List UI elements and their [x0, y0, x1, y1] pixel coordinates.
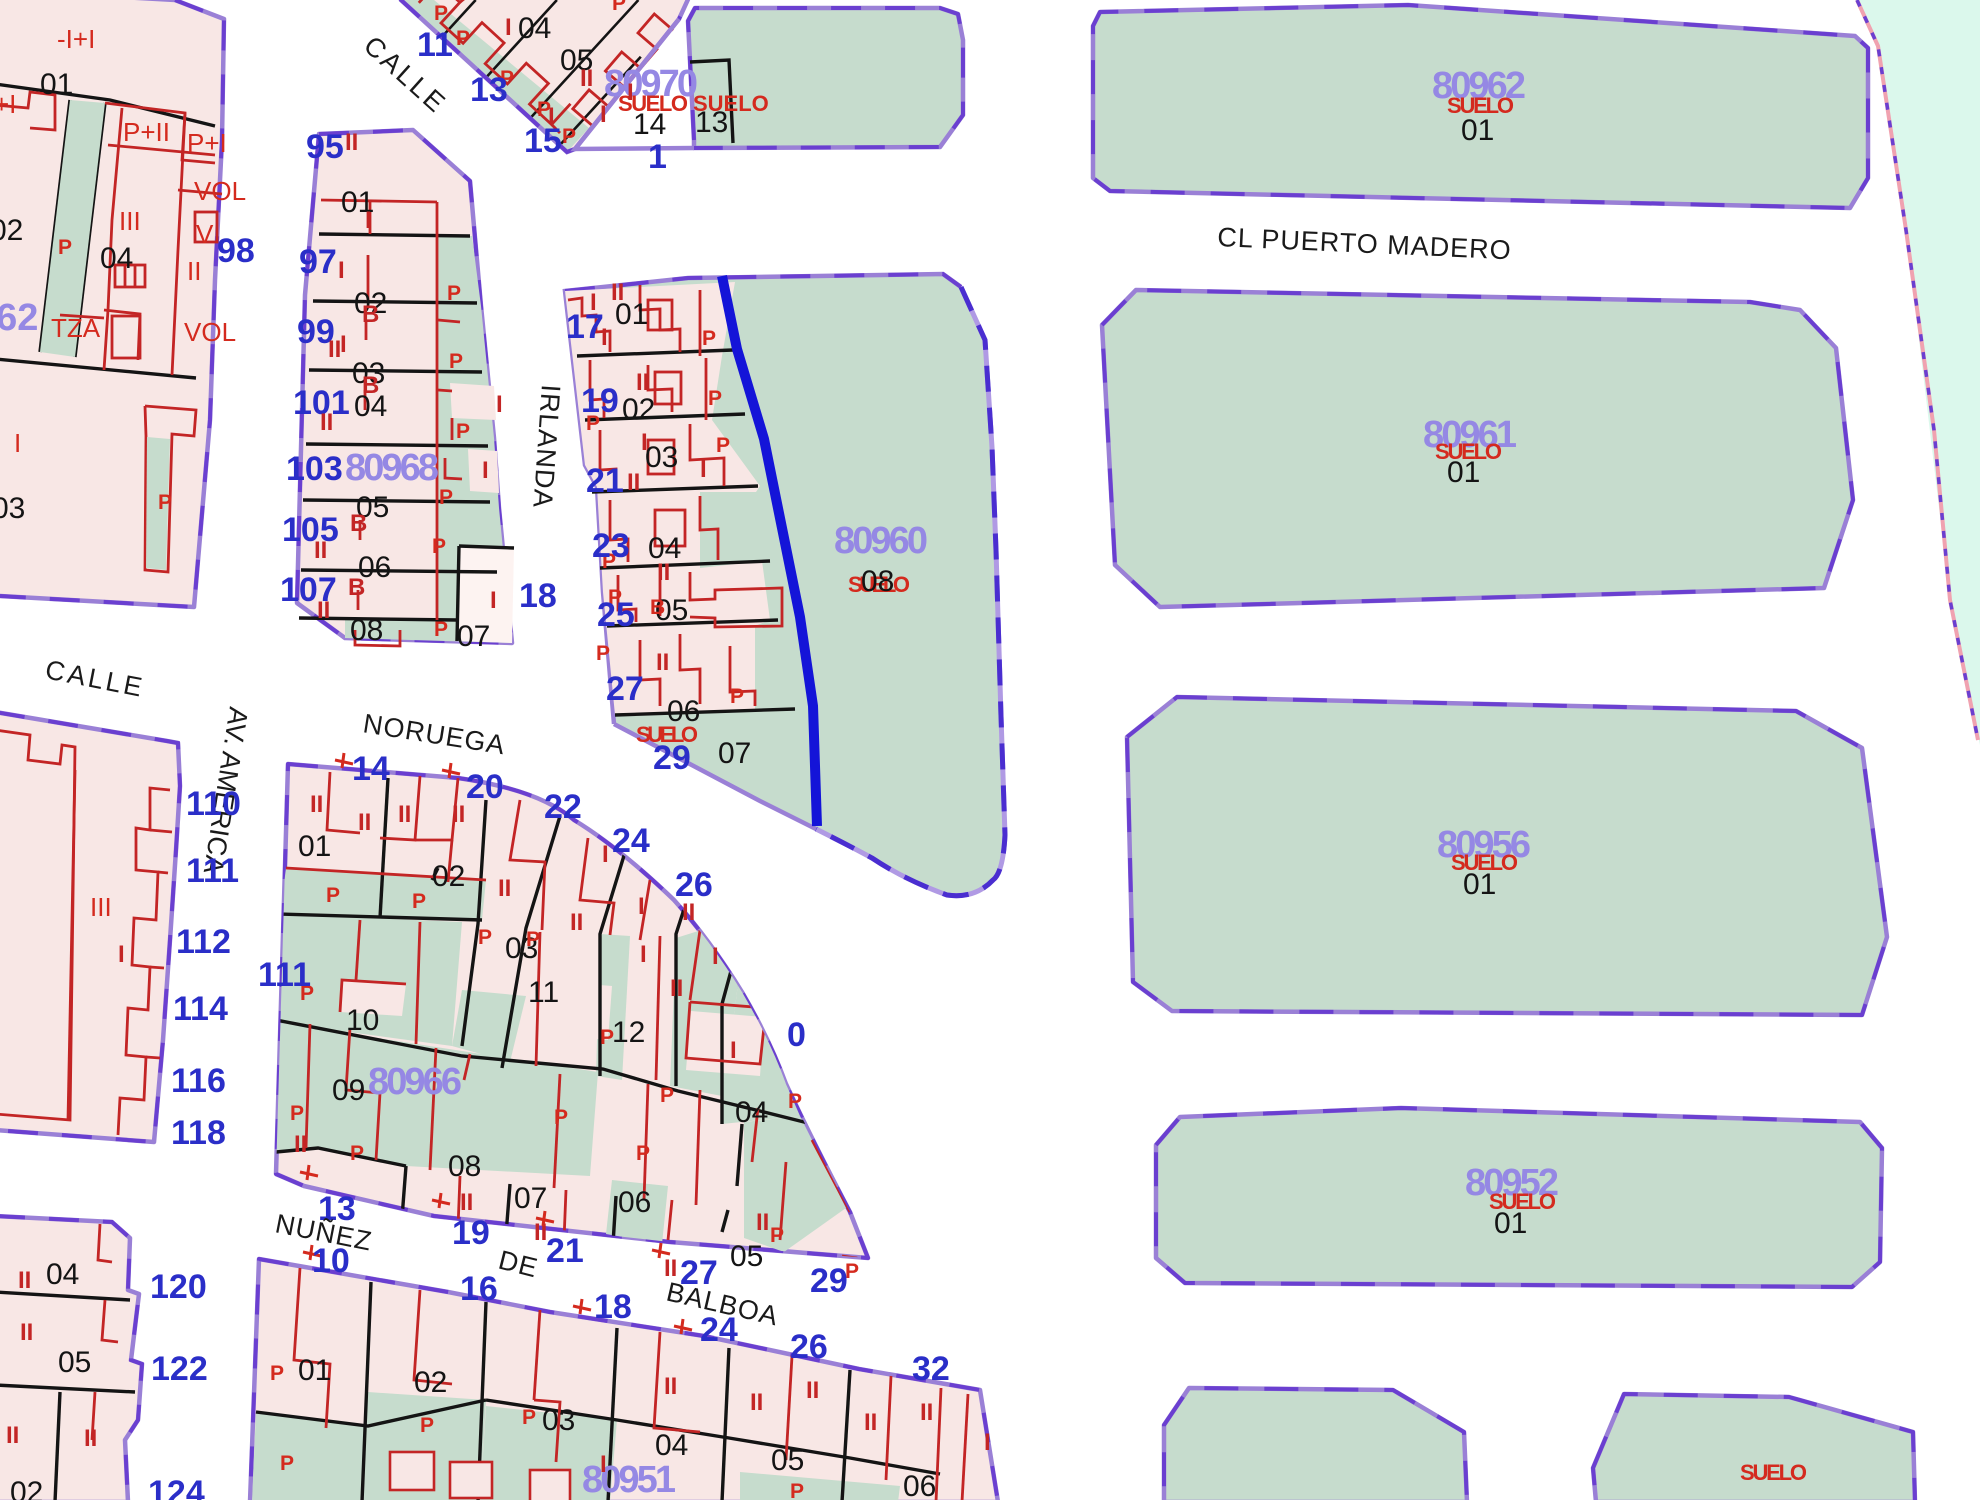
svg-text:P: P: [478, 926, 492, 949]
svg-text:P: P: [447, 282, 461, 305]
svg-text:P: P: [790, 1480, 804, 1500]
svg-text:19: 19: [452, 1214, 490, 1252]
svg-text:116: 116: [171, 1062, 226, 1100]
svg-text:II: II: [20, 1319, 33, 1346]
svg-text:111: 111: [258, 956, 311, 994]
svg-text:26: 26: [675, 866, 713, 904]
svg-text:III: III: [90, 892, 112, 922]
svg-text:03: 03: [645, 441, 678, 474]
svg-text:105: 105: [282, 511, 339, 549]
svg-text:13: 13: [470, 71, 508, 109]
svg-text:02: 02: [10, 1476, 43, 1500]
svg-text:122: 122: [151, 1350, 208, 1388]
svg-text:III: III: [119, 206, 141, 236]
svg-text:I: I: [640, 941, 647, 968]
svg-text:P: P: [456, 420, 470, 443]
svg-text:P: P: [660, 1084, 674, 1107]
svg-text:01: 01: [40, 68, 73, 101]
svg-text:II: II: [460, 1189, 473, 1216]
svg-text:21: 21: [586, 462, 624, 500]
svg-text:B: B: [362, 301, 379, 328]
svg-text:06: 06: [618, 1186, 651, 1219]
svg-text:P+I: P+I: [187, 128, 227, 158]
svg-text:P: P: [158, 491, 172, 514]
svg-text:29: 29: [810, 1262, 848, 1300]
svg-text:01: 01: [1447, 456, 1480, 489]
svg-text:80966: 80966: [368, 1061, 462, 1103]
svg-text:10: 10: [312, 1242, 350, 1280]
svg-text:P: P: [434, 618, 448, 641]
svg-text:26: 26: [790, 1328, 828, 1366]
svg-text:P: P: [526, 928, 540, 951]
svg-text:120: 120: [150, 1268, 207, 1306]
svg-text:80960: 80960: [834, 520, 928, 562]
svg-text:II: II: [314, 537, 327, 564]
svg-text:08: 08: [861, 565, 894, 598]
svg-text:17: 17: [566, 308, 604, 346]
svg-text:24: 24: [700, 1311, 738, 1349]
svg-text:01: 01: [1463, 868, 1496, 901]
svg-text:23: 23: [592, 527, 630, 565]
svg-text:110: 110: [186, 785, 241, 823]
svg-text:II: II: [920, 1399, 933, 1426]
svg-text:07: 07: [718, 737, 751, 770]
svg-text:08: 08: [448, 1150, 481, 1183]
svg-text:TZA: TZA: [51, 313, 101, 343]
svg-text:P: P: [708, 387, 722, 410]
svg-text:I: I: [730, 1037, 737, 1064]
svg-text:03: 03: [0, 492, 25, 525]
svg-text:04: 04: [518, 12, 551, 45]
svg-text:II: II: [320, 409, 333, 436]
svg-text:P: P: [350, 1142, 364, 1165]
svg-text:I: I: [627, 79, 634, 106]
svg-text:P: P: [562, 125, 576, 148]
svg-text:II: II: [627, 469, 640, 496]
svg-text:P: P: [290, 1102, 304, 1125]
svg-text:P: P: [612, 0, 626, 15]
svg-text:SUELO: SUELO: [1740, 1460, 1807, 1485]
svg-text:II: II: [670, 975, 683, 1002]
svg-text:II: II: [580, 65, 593, 92]
svg-text:II: II: [611, 279, 624, 306]
svg-text:1: 1: [648, 138, 667, 176]
svg-text:-I+I: -I+I: [57, 24, 95, 54]
svg-text:II: II: [452, 801, 465, 828]
svg-text:P: P: [770, 1224, 784, 1247]
svg-text:P: P: [420, 1414, 434, 1437]
svg-text:II: II: [657, 559, 670, 586]
svg-text:04: 04: [100, 242, 133, 275]
svg-text:09: 09: [332, 1074, 365, 1107]
svg-text:B: B: [348, 574, 365, 601]
svg-text:II: II: [756, 1209, 769, 1236]
svg-text:P: P: [432, 535, 446, 558]
svg-text:I: I: [638, 893, 645, 920]
svg-text:II: II: [664, 1373, 677, 1400]
svg-text:I: I: [984, 1429, 991, 1456]
svg-text:103: 103: [286, 450, 343, 488]
svg-text:II: II: [806, 1377, 819, 1404]
svg-text:I: I: [641, 429, 648, 456]
svg-text:02: 02: [432, 860, 465, 893]
svg-text:P: P: [788, 1090, 802, 1113]
svg-text:18: 18: [594, 1288, 632, 1326]
svg-text:02: 02: [0, 214, 23, 247]
svg-text:P: P: [596, 642, 610, 665]
svg-text:II: II: [498, 875, 511, 902]
svg-text:P: P: [412, 890, 426, 913]
svg-text:I: I: [602, 841, 609, 868]
svg-text:15: 15: [524, 122, 562, 160]
svg-text:95: 95: [306, 128, 344, 166]
svg-text:II: II: [656, 649, 669, 676]
svg-text:05: 05: [58, 1346, 91, 1379]
svg-text:I: I: [118, 941, 125, 968]
svg-text:P: P: [58, 236, 72, 259]
svg-text:24: 24: [612, 822, 650, 860]
svg-text:08: 08: [350, 614, 383, 647]
svg-text:06: 06: [903, 1470, 936, 1500]
svg-text:118: 118: [171, 1114, 226, 1152]
svg-text:II: II: [358, 809, 371, 836]
svg-text:962: 962: [0, 297, 38, 339]
svg-text:02: 02: [622, 393, 655, 426]
svg-text:P: P: [522, 1406, 536, 1429]
svg-text:22: 22: [544, 788, 582, 826]
svg-text:P: P: [730, 685, 744, 708]
svg-text:112: 112: [176, 923, 231, 961]
svg-text:P: P: [449, 350, 463, 373]
svg-text:P: P: [702, 327, 716, 350]
svg-text:111: 111: [186, 852, 239, 890]
svg-text:I: I: [482, 457, 489, 484]
svg-text:II: II: [6, 1422, 19, 1449]
svg-text:16: 16: [460, 1270, 498, 1308]
svg-text:I: I: [496, 391, 503, 418]
svg-text:98: 98: [217, 232, 255, 270]
svg-text:B: B: [350, 510, 367, 537]
svg-text:P: P: [280, 1452, 294, 1475]
svg-text:13: 13: [695, 106, 728, 139]
svg-text:80968: 80968: [345, 447, 439, 489]
svg-text:II: II: [310, 791, 323, 818]
svg-text:I: I: [365, 207, 372, 234]
svg-text:I: I: [490, 587, 497, 614]
svg-text:II: II: [317, 597, 330, 624]
svg-text:II: II: [750, 1389, 763, 1416]
svg-text:I: I: [338, 257, 345, 284]
svg-text:P: P: [600, 1026, 614, 1049]
svg-text:I: I: [600, 101, 607, 128]
svg-text:29: 29: [653, 739, 691, 777]
svg-text:I: I: [600, 1451, 607, 1478]
svg-text:07: 07: [457, 620, 490, 653]
svg-text:VOL: VOL: [184, 317, 236, 347]
svg-text:+I: +I: [0, 89, 16, 119]
svg-text:II: II: [18, 1267, 31, 1294]
svg-text:II: II: [294, 1131, 307, 1158]
svg-text:V: V: [196, 219, 214, 249]
svg-text:07: 07: [514, 1182, 547, 1215]
svg-text:II: II: [187, 256, 201, 286]
svg-text:04: 04: [46, 1258, 79, 1291]
svg-text:04: 04: [735, 1096, 768, 1129]
svg-text:P: P: [716, 434, 730, 457]
svg-text:25: 25: [597, 596, 635, 634]
svg-text:114: 114: [173, 990, 228, 1028]
svg-text:01: 01: [1494, 1207, 1527, 1240]
svg-text:02: 02: [414, 1366, 447, 1399]
svg-text:II: II: [84, 1425, 97, 1452]
svg-text:97: 97: [299, 243, 337, 281]
svg-text:B: B: [650, 596, 665, 619]
svg-text:P: P: [537, 98, 551, 121]
svg-text:11: 11: [528, 976, 559, 1009]
svg-text:01: 01: [298, 830, 331, 863]
svg-text:II: II: [864, 1409, 877, 1436]
svg-text:32: 32: [912, 1350, 950, 1388]
svg-text:11: 11: [417, 26, 453, 64]
svg-text:II: II: [570, 909, 583, 936]
svg-text:P: P: [456, 27, 470, 50]
svg-text:P: P: [554, 1106, 568, 1129]
svg-text:I: I: [700, 456, 707, 483]
svg-text:05: 05: [730, 1240, 763, 1273]
svg-text:P: P: [326, 884, 340, 907]
svg-text:P: P: [434, 2, 448, 25]
svg-text:18: 18: [519, 577, 557, 615]
svg-text:20: 20: [466, 768, 504, 806]
svg-text:01: 01: [1461, 114, 1494, 147]
svg-text:14: 14: [352, 750, 390, 788]
svg-text:I: I: [14, 428, 21, 458]
svg-text:0: 0: [787, 1016, 806, 1054]
svg-text:II: II: [636, 369, 649, 396]
svg-text:P: P: [439, 486, 453, 509]
svg-text:II: II: [398, 801, 411, 828]
svg-text:04: 04: [655, 1429, 688, 1462]
svg-text:03: 03: [542, 1404, 575, 1437]
svg-text:01: 01: [298, 1354, 331, 1387]
svg-text:II: II: [345, 129, 358, 156]
svg-text:27: 27: [606, 670, 644, 708]
svg-text:14: 14: [633, 108, 666, 141]
svg-text:P+II: P+II: [123, 117, 170, 147]
svg-text:80951: 80951: [582, 1459, 676, 1500]
svg-text:P: P: [270, 1362, 284, 1385]
svg-text:I: I: [505, 14, 512, 41]
svg-text:I: I: [712, 943, 719, 970]
svg-text:12: 12: [612, 1016, 645, 1049]
svg-text:19: 19: [581, 382, 619, 420]
svg-text:124: 124: [148, 1474, 205, 1500]
svg-text:B: B: [362, 372, 379, 399]
svg-text:21: 21: [546, 1232, 584, 1270]
svg-text:05: 05: [771, 1444, 804, 1477]
svg-text:II: II: [328, 336, 341, 363]
svg-text:P: P: [636, 1142, 650, 1165]
svg-text:10: 10: [346, 1004, 379, 1037]
svg-text:VOL: VOL: [194, 176, 246, 206]
